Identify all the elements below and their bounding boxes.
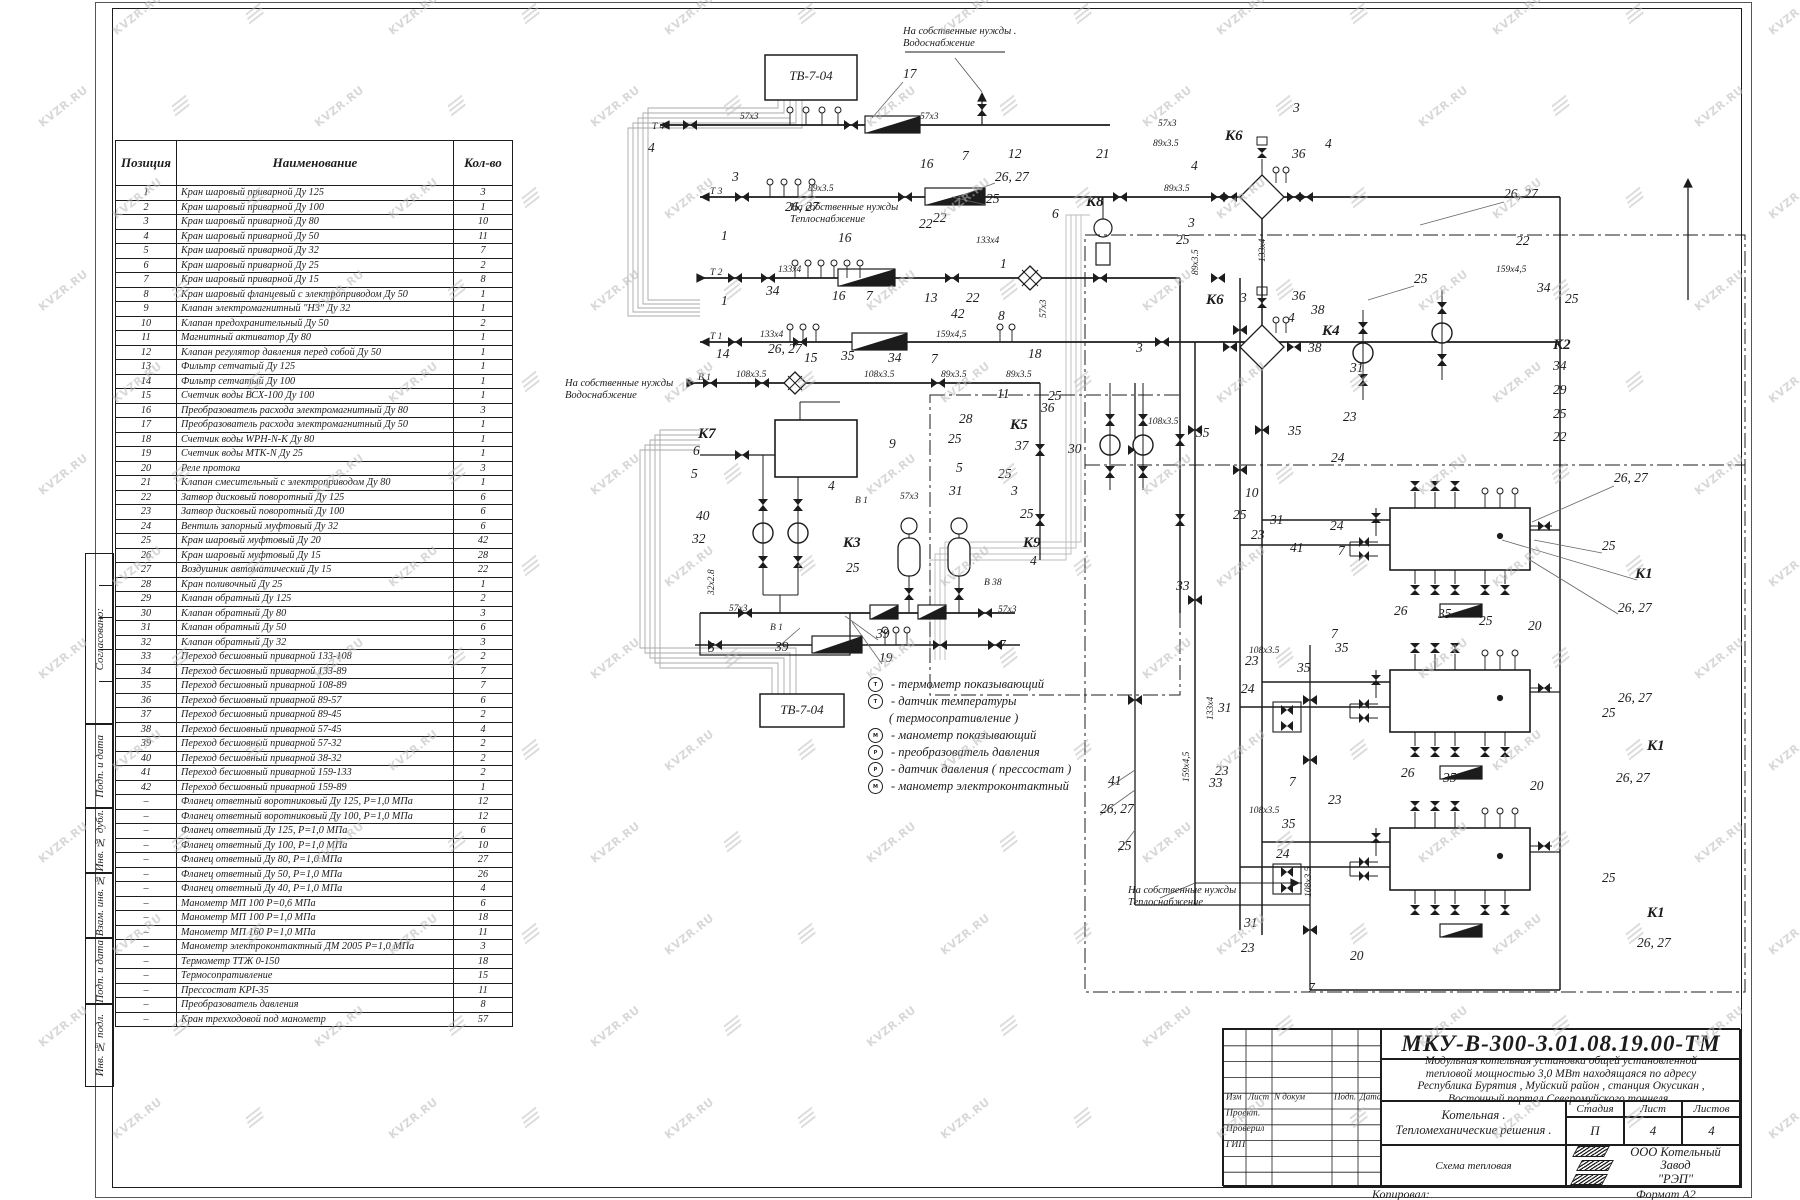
position-number-label: 31 [1243,915,1258,930]
row-qty: 18 [454,954,513,969]
position-number-label: 4 [1030,553,1037,568]
pipe-size-label: 133х4 [778,265,801,275]
table-row: 10Клапан предохранительный Ду 502 [116,316,513,331]
legend-symbol-icon: Р [868,745,883,760]
position-number-label: 25 [1602,705,1616,720]
row-qty: 8 [454,998,513,1013]
position-number-label: 29 [1553,382,1567,397]
row-qty: 1 [454,447,513,462]
row-qty: 27 [454,853,513,868]
table-row: 3Кран шаровый приварной Ду 8010 [116,215,513,230]
position-number-label: 26, 27 [1618,600,1653,615]
row-position: 24 [116,519,177,534]
service-note: На собственные нужды [789,202,898,213]
title-grid-text: N докум [1273,1091,1305,1101]
table-row: 39Переход бесшовный приварной 57-322 [116,737,513,752]
position-number-label: 11 [997,386,1010,401]
equipment-label: К7 [697,426,716,442]
legend-symbol-icon: М [868,779,883,794]
position-number-label: 4 [1288,310,1295,325]
row-position: 6 [116,258,177,273]
pipe-size-label: 57х3 [900,492,919,502]
row-position: 14 [116,374,177,389]
row-position: – [116,795,177,810]
position-number-label: 23 [1241,940,1255,955]
position-number-label: 25 [1020,506,1034,521]
row-name: Клапан обратный Ду 125 [177,592,454,607]
format-label: Формат А2 [1636,1187,1696,1200]
row-qty: 3 [454,186,513,201]
pipe-size-label: 159х4,5 [1496,265,1527,275]
table-row: 8Кран шаровый фланцевый с электроприводо… [116,287,513,302]
position-number-label: 31 [948,483,963,498]
position-number-label: 37 [1014,438,1030,453]
row-position: 26 [116,548,177,563]
row-qty: 10 [454,838,513,853]
table-row: –Фланец ответный Ду 50, P=1,0 МПа26 [116,867,513,882]
row-qty: 4 [454,882,513,897]
row-name: Переход бесшовный приварной 159-89 [177,780,454,795]
row-position: 37 [116,708,177,723]
position-number-label: 35 [840,348,855,363]
table-row: 38Переход бесшовный приварной 57-454 [116,722,513,737]
table-row: 40Переход бесшовный приварной 38-322 [116,751,513,766]
row-position: 22 [116,490,177,505]
table-row: 4Кран шаровый приварной Ду 5011 [116,229,513,244]
sheets-header: Листов [1682,1101,1741,1117]
legend-item: М- манометр электроконтактный [868,778,1071,795]
row-qty: 1 [454,418,513,433]
equipment-label: К4 [1321,323,1340,339]
equipment-label: К1 [1634,566,1653,582]
pipe-size-label: 159х4,5 [1182,751,1192,782]
position-number-label: 28 [959,411,973,426]
pipe-size-label: 108х3.5 [1249,806,1280,816]
engineering-drawing-page: Согласовано:Подп. и датаИнв. № дубл.Взам… [0,0,1800,1200]
position-number-label: 24 [1276,846,1290,861]
position-number-label: 3 [1187,215,1195,230]
position-number-label: 41 [1290,540,1304,555]
row-qty: 7 [454,679,513,694]
row-position: 42 [116,780,177,795]
row-name: Переход бесшовный приварной 57-45 [177,722,454,737]
legend-text: - преобразователь давления [891,745,1040,760]
row-name: Кран шаровый приварной Ду 32 [177,244,454,259]
row-qty: 2 [454,316,513,331]
row-name: Фильтр сетчатый Ду 100 [177,374,454,389]
pipe-size-label: 159х4,5 [936,330,967,340]
row-name: Кран шаровый муфтовый Ду 20 [177,534,454,549]
position-number-label: 8 [998,308,1005,323]
row-qty: 3 [454,940,513,955]
row-position: 19 [116,447,177,462]
row-position: – [116,1012,177,1027]
position-number-label: 33 [1208,775,1223,790]
row-name: Вентиль запорный муфтовый Ду 32 [177,519,454,534]
pipe-size-label: Т 1 [710,332,722,342]
pipe-size-label: Т 2 [710,268,723,278]
table-row: 26Кран шаровый муфтовый Ду 1528 [116,548,513,563]
position-number-label: 25 [948,431,962,446]
position-number-label: 25 [986,191,1000,206]
row-position: 9 [116,302,177,317]
position-number-label: 7 [962,148,970,163]
row-position: 34 [116,664,177,679]
row-position: 13 [116,360,177,375]
service-note: На собственные нужды [564,378,673,389]
row-name: Затвор дисковый поворотный Ду 100 [177,505,454,520]
title-block: ИзмЛистN докумПодп.ДатаПроект.ПроверилГИ… [1222,1028,1740,1186]
pipe-size-label: 108х3.5 [864,370,895,380]
title-grid-text: Подп. [1333,1091,1356,1101]
pipe-size-label: 89х3.5 [808,184,834,194]
row-qty: 3 [454,606,513,621]
legend-item: Т- термометр показывающий [868,676,1071,693]
row-qty: 2 [454,708,513,723]
row-position: 40 [116,751,177,766]
position-number-label: 31 [1217,700,1232,715]
row-qty: 11 [454,925,513,940]
position-number-label: 26 [1401,765,1415,780]
table-row: 17Преобразователь расхода электромагнитн… [116,418,513,433]
position-number-label: 18 [1028,346,1042,361]
position-number-label: 36 [1040,400,1055,415]
position-number-label: 31 [1269,512,1284,527]
position-number-label: 33 [1175,578,1190,593]
legend-spacer [868,712,881,725]
equipment-label: К1 [1646,905,1665,921]
service-note: На собственные нужды . [1127,885,1241,896]
row-qty: 1 [454,432,513,447]
legend-symbol-icon: М [868,728,883,743]
row-qty: 2 [454,737,513,752]
table-row: 14Фильтр сетчатый Ду 1001 [116,374,513,389]
row-name: Переход бесшовный приварной 57-32 [177,737,454,752]
position-number-label: 38 [1310,302,1325,317]
row-position: – [116,969,177,984]
row-name: Клапан обратный Ду 80 [177,606,454,621]
row-position: 7 [116,273,177,288]
pipe-size-label: В 1 [855,496,868,506]
row-qty: 3 [454,461,513,476]
row-name: Затвор дисковый поворотный Ду 125 [177,490,454,505]
company-cell: ООО КотельныйЗавод"РЭП" [1566,1145,1741,1187]
pipe-size-label: 108х3.5 [1148,417,1179,427]
position-number-label: 34 [765,283,780,298]
position-number-label: 16 [832,288,846,303]
row-name: Переход бесшовный приварной 159-133 [177,766,454,781]
row-name: Клапан обратный Ду 32 [177,635,454,650]
table-row: 28Кран поливочный Ду 251 [116,577,513,592]
row-name: Кран шаровый приварной Ду 15 [177,273,454,288]
row-qty: 42 [454,534,513,549]
row-qty: 2 [454,650,513,665]
equipment-label: К8 [1085,194,1104,210]
position-number-label: 4 [1191,158,1198,173]
legend-text: - датчик давления ( прессостат ) [891,762,1071,777]
equipment-label: К2 [1552,337,1571,353]
pipe-size-label: 108х3.5 [1249,646,1280,656]
row-qty: 10 [454,215,513,230]
tv-box-label: ТВ-7-04 [789,68,833,83]
table-row: 16Преобразователь расхода электромагнитн… [116,403,513,418]
position-number-label: 25 [1176,232,1190,247]
pipe-size-label: В 38 [984,578,1002,588]
row-name: Счетчик воды WPH-N-K Ду 80 [177,432,454,447]
row-position: – [116,911,177,926]
table-row: 31Клапан обратный Ду 506 [116,621,513,636]
row-qty: 3 [454,635,513,650]
pipe-size-label: 89х3.5 [1153,139,1179,149]
row-position: 4 [116,229,177,244]
table-row: 24Вентиль запорный муфтовый Ду 326 [116,519,513,534]
table-row: –Фланец ответный воротниковый Ду 100, P=… [116,809,513,824]
row-qty: 1 [454,577,513,592]
stage-value: П [1566,1117,1624,1145]
pipe-size-label: 57х3 [740,112,759,122]
position-number-label: 26, 27 [1614,470,1649,485]
position-number-label: 26, 27 [1100,801,1135,816]
legend-item: Т- датчик температуры [868,693,1071,710]
row-name: Клапан регулятор давления перед собой Ду… [177,345,454,360]
position-number-label: 12 [1008,146,1022,161]
title-grid-text: Проверил [1225,1124,1264,1134]
row-name: Реле протока [177,461,454,476]
position-number-label: 20 [1350,948,1364,963]
row-qty: 6 [454,490,513,505]
row-qty: 1 [454,200,513,215]
table-row: 2Кран шаровый приварной Ду 1001 [116,200,513,215]
equipment-label: К6 [1205,292,1224,308]
position-number-label: 5 [708,640,715,655]
sheet-value: 4 [1624,1117,1682,1145]
table-row: 33Переход бесшовный приварной 133-1082 [116,650,513,665]
position-number-label: 39 [875,626,890,641]
row-name: Клапан электромагнитный "НЗ" Ду 32 [177,302,454,317]
table-row: –Фланец ответный Ду 40, P=1,0 МПа4 [116,882,513,897]
position-number-label: 30 [1067,441,1082,456]
row-qty: 1 [454,780,513,795]
scheme-name: Схема тепловая [1381,1145,1566,1187]
position-number-label: 16 [838,230,852,245]
row-position: – [116,882,177,897]
legend-item: Р- датчик давления ( прессостат ) [868,761,1071,778]
row-name: Счетчик воды МТК-N Ду 25 [177,447,454,462]
row-qty: 1 [454,374,513,389]
sheets-value: 4 [1682,1117,1741,1145]
row-position: – [116,896,177,911]
table-row: 1Кран шаровый приварной Ду 1253 [116,186,513,201]
table-row: –Фланец ответный Ду 100, P=1,0 МПа10 [116,838,513,853]
position-number-label: 5 [956,460,963,475]
table-row: 23Затвор дисковый поворотный Ду 1006 [116,505,513,520]
table-row: –Фланец ответный Ду 80, P=1,0 МПа27 [116,853,513,868]
table-row: 32Клапан обратный Ду 323 [116,635,513,650]
position-number-label: 24 [1241,681,1255,696]
parts-table-header-qty: Кол-во [454,141,513,186]
position-number-label: 34 [1536,280,1551,295]
row-position: 1 [116,186,177,201]
row-name: Воздушник автоматический Ду 15 [177,563,454,578]
position-number-label: 35 [1437,606,1452,621]
position-number-label: 26, 27 [1616,770,1651,785]
row-name: Переход бесшовный приварной 89-45 [177,708,454,723]
position-number-label: 3 [1292,100,1300,115]
row-name: Переход бесшовный приварной 133-108 [177,650,454,665]
table-row: 7Кран шаровый приварной Ду 158 [116,273,513,288]
position-number-label: 7 [931,351,939,366]
row-name: Кран шаровый приварной Ду 80 [177,215,454,230]
pipe-size-label: 133х4 [760,330,783,340]
legend-text: - манометр показывающий [891,728,1036,743]
table-row: 12Клапан регулятор давления перед собой … [116,345,513,360]
row-qty: 28 [454,548,513,563]
pipe-size-label: 57х3 [1158,119,1177,129]
row-qty: 6 [454,505,513,520]
legend-item: ( термосопративление ) [868,710,1071,727]
position-number-label: 21 [1096,146,1110,161]
position-number-label: 24 [1330,518,1344,533]
row-position: 31 [116,621,177,636]
position-number-label: 23 [1343,409,1357,424]
table-row: –Прессостат KPI-3511 [116,983,513,998]
pipe-size-label: В 1 [698,373,711,383]
position-number-label: 25 [1565,291,1579,306]
position-number-label: 6 [693,443,700,458]
position-number-label: 41 [1108,773,1122,788]
row-name: Фланец ответный Ду 40, P=1,0 МПа [177,882,454,897]
row-position: 33 [116,650,177,665]
table-row: –Термометр ТТЖ 0-15018 [116,954,513,969]
project-description: Модульная котельная установка общей уста… [1381,1059,1741,1101]
pipe-size-label: 133х4 [976,236,999,246]
equipment-label: К9 [1022,535,1041,551]
row-position: 35 [116,679,177,694]
row-position: – [116,867,177,882]
row-name: Термометр ТТЖ 0-150 [177,954,454,969]
row-name: Преобразователь давления [177,998,454,1013]
table-row: 41Переход бесшовный приварной 159-1332 [116,766,513,781]
row-position: 41 [116,766,177,781]
row-position: 36 [116,693,177,708]
position-number-label: 25 [1602,538,1616,553]
row-name: Манометр МП 100 P=0,6 МПа [177,896,454,911]
row-qty: 1 [454,360,513,375]
position-number-label: 39 [774,639,789,654]
position-number-label: 34 [1552,358,1567,373]
row-position: 29 [116,592,177,607]
parts-table: ПозицияНаименованиеКол-во1Кран шаровый п… [115,140,513,1027]
row-position: – [116,983,177,998]
position-number-label: 22 [933,210,947,225]
row-name: Термосопративление [177,969,454,984]
position-number-label: 35 [1281,816,1296,831]
table-row: 21Клапан смесительный с электроприводом … [116,476,513,491]
row-name: Счетчик воды ВСХ-100 Ду 100 [177,389,454,404]
row-name: Переход бесшовный приварной 38-32 [177,751,454,766]
row-position: 25 [116,534,177,549]
row-qty: 6 [454,693,513,708]
row-position: 10 [116,316,177,331]
row-name: Кран шаровый приварной Ду 25 [177,258,454,273]
table-row: 42Переход бесшовный приварной 159-891 [116,780,513,795]
position-number-label: 22 [966,290,980,305]
position-number-label: 16 [920,156,934,171]
position-number-label: 23 [1328,792,1342,807]
legend-text: - манометр электроконтактный [891,779,1069,794]
table-row: 6Кран шаровый приварной Ду 252 [116,258,513,273]
row-position: 16 [116,403,177,418]
table-row: –Кран трехходовой под манометр57 [116,1012,513,1027]
position-number-label: 17 [903,66,918,81]
position-number-label: 25 [1233,507,1247,522]
row-name: Манометр электроконтактный ДМ 2005 P=1,0… [177,940,454,955]
row-qty: 1 [454,345,513,360]
position-number-label: 22 [1516,233,1530,248]
row-qty: 7 [454,244,513,259]
position-number-label: 7 [866,288,874,303]
sheet-header: Лист [1624,1101,1682,1117]
stamp-box: Инв. № дубл. [85,807,114,874]
stamp-box: Взам. инв. № [85,872,114,939]
table-row: 34Переход бесшовный приварной 133-897 [116,664,513,679]
company-name: ООО КотельныйЗавод"РЭП" [1611,1146,1740,1187]
title-grid-text: Проект. [1225,1108,1260,1118]
position-number-label: 23 [1251,527,1265,542]
position-number-label: 1 [1000,256,1007,271]
equipment-label: К1 [1646,738,1665,754]
position-number-label: 35 [1442,770,1457,785]
row-qty: 11 [454,983,513,998]
row-name: Клапан предохранительный Ду 50 [177,316,454,331]
stamp-box: Подп. и дата [85,937,114,1005]
row-name: Кран поливочный Ду 25 [177,577,454,592]
position-number-label: 22 [1553,429,1567,444]
row-qty: 12 [454,809,513,824]
table-row: 27Воздушник автоматический Ду 1522 [116,563,513,578]
position-number-label: 20 [1528,618,1542,633]
position-number-label: 35 [1296,660,1311,675]
row-qty: 2 [454,766,513,781]
row-position: – [116,809,177,824]
equipment-label: К6 [1224,128,1243,144]
row-position: 8 [116,287,177,302]
position-number-label: 4 [648,140,655,155]
row-qty: 57 [454,1012,513,1027]
position-number-label: 22 [919,216,933,231]
table-row: –Преобразователь давления8 [116,998,513,1013]
row-position: 39 [116,737,177,752]
row-position: – [116,998,177,1013]
legend-symbol-icon: Т [868,677,883,692]
row-position: 27 [116,563,177,578]
table-row: 5Кран шаровый приварной Ду 327 [116,244,513,259]
position-number-label: 25 [1479,613,1493,628]
legend-symbol-icon: Т [868,694,883,709]
position-number-label: 7 [1308,980,1316,995]
position-number-label: 25 [1602,870,1616,885]
position-number-label: 25 [846,560,860,575]
legend: Т- термометр показывающийТ- датчик темпе… [868,676,1071,795]
position-number-label: 25 [1553,406,1567,421]
row-position: 15 [116,389,177,404]
row-name: Преобразователь расхода электромагнитный… [177,403,454,418]
position-number-label: 26, 27 [1618,690,1653,705]
position-number-label: 9 [889,436,896,451]
title-roles-grid: ИзмЛистN докумПодп.ДатаПроект.ПроверилГИ… [1223,1029,1381,1187]
position-number-label: 26, 27 [768,341,803,356]
position-number-label: 3 [1010,483,1018,498]
